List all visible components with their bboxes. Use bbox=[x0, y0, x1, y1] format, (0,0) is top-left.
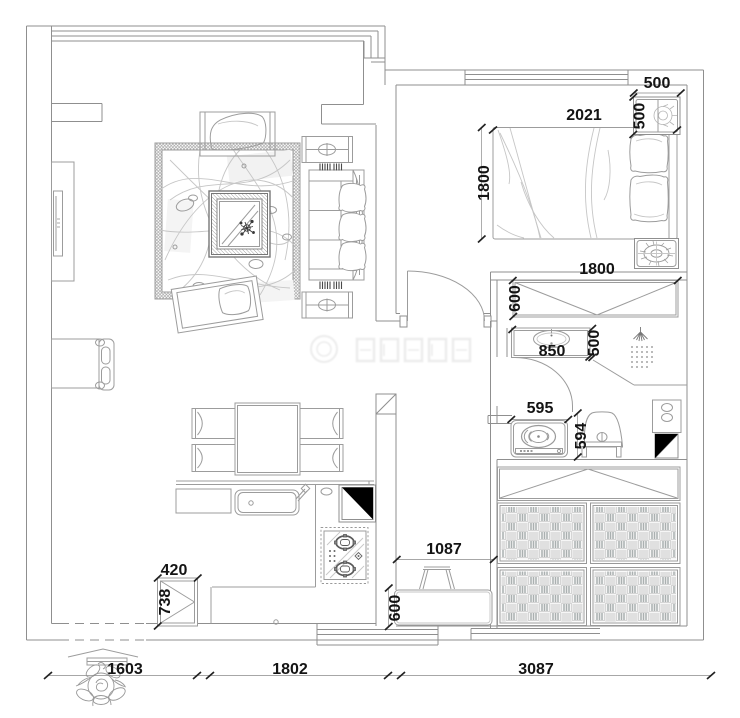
svg-text:500: 500 bbox=[632, 103, 649, 130]
svg-text:600: 600 bbox=[387, 595, 404, 622]
svg-text:600: 600 bbox=[507, 285, 524, 312]
svg-text:1603: 1603 bbox=[107, 661, 143, 678]
svg-text:500: 500 bbox=[644, 75, 671, 92]
svg-text:595: 595 bbox=[527, 400, 554, 417]
svg-text:1800: 1800 bbox=[476, 165, 493, 201]
svg-text:850: 850 bbox=[539, 343, 566, 360]
svg-text:500: 500 bbox=[586, 330, 603, 357]
svg-text:420: 420 bbox=[161, 562, 188, 579]
svg-text:1800: 1800 bbox=[579, 261, 615, 278]
svg-text:594: 594 bbox=[573, 423, 590, 450]
svg-text:3087: 3087 bbox=[518, 661, 554, 678]
svg-text:1087: 1087 bbox=[426, 541, 462, 558]
svg-text:1802: 1802 bbox=[272, 661, 308, 678]
svg-text:2021: 2021 bbox=[566, 107, 602, 124]
svg-text:738: 738 bbox=[157, 589, 174, 616]
